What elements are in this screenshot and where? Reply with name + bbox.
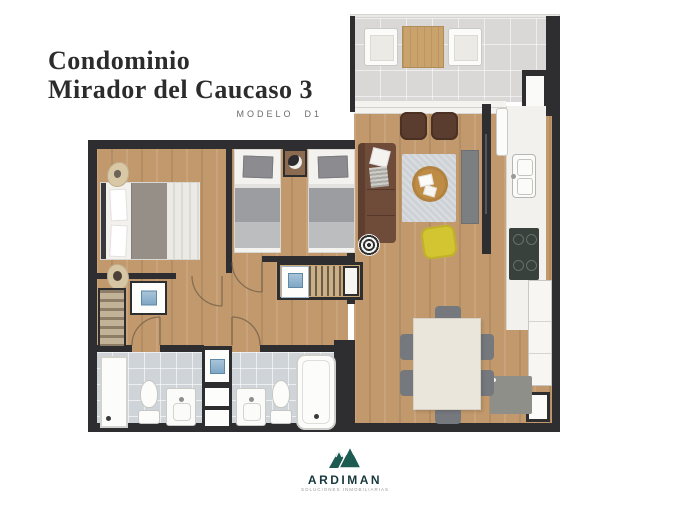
door-swing-bathroom1 [132,317,160,345]
logo-mark-wrap [285,444,405,473]
mountain-logo-icon [325,444,365,468]
page: Condominio Mirador del Caucaso 3 MODELO … [0,0,680,510]
door-swing-bedroom2 [232,262,262,292]
brand-name: ARDIMAN [285,473,405,487]
door-swing-bedroom1 [192,276,222,306]
door-swing-bathroom2 [232,317,260,345]
door-swing-overlay [88,12,564,436]
brand-logo-block: ARDIMAN SOLUCIONES INMOBILIARIAS [285,444,405,492]
brand-tagline: SOLUCIONES INMOBILIARIAS [285,487,405,492]
floor-plan [88,12,564,436]
